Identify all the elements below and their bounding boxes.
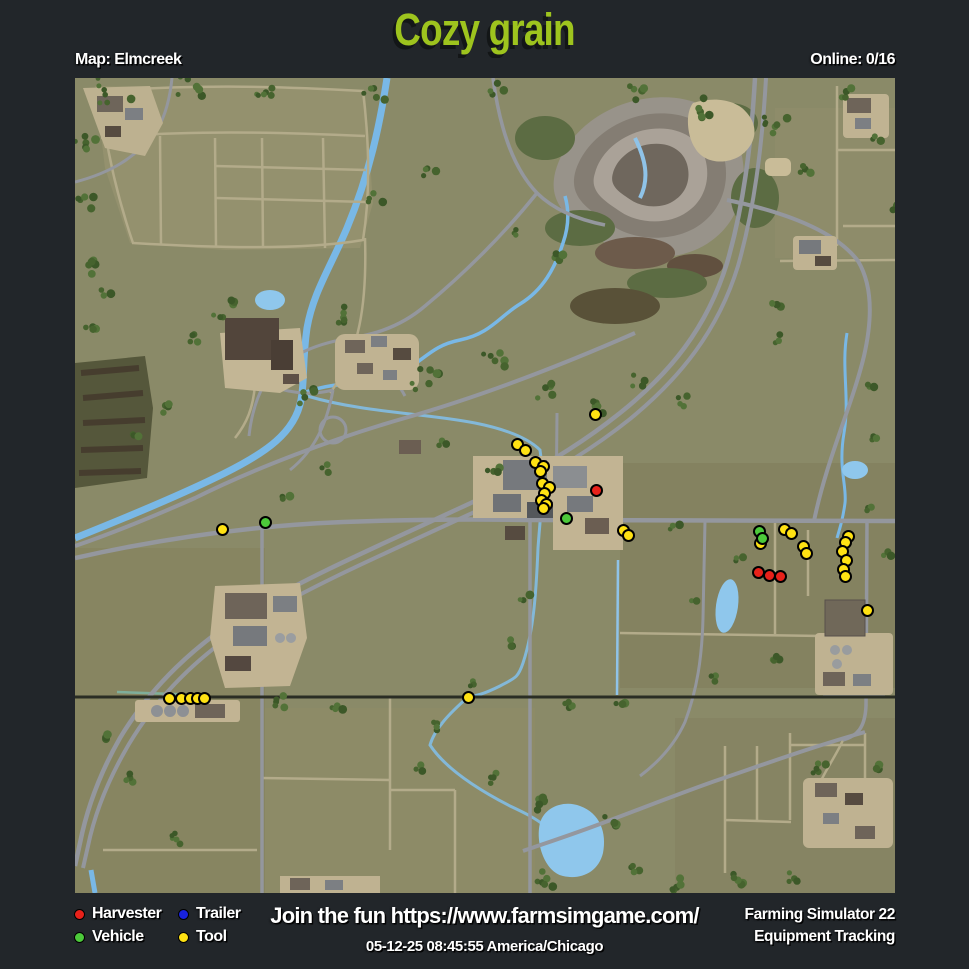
marker-tool[interactable] (216, 523, 229, 536)
equipment-tracking-page: Cozy grain Map: Elmcreek Online: 0/16 (0, 0, 969, 969)
marker-tool[interactable] (861, 604, 874, 617)
equipment-marker-layer (75, 78, 895, 893)
marker-vehicle[interactable] (756, 532, 769, 545)
marker-harvester[interactable] (590, 484, 603, 497)
map-name-label: Map: Elmcreek (75, 51, 181, 69)
app-title-line1: Farming Simulator 22 (745, 904, 895, 926)
timestamp: 05-12-25 08:45:55 America/Chicago (200, 938, 769, 955)
legend-item-harvester: Harvester (74, 906, 178, 922)
legend-item-vehicle: Vehicle (74, 929, 178, 945)
marker-tool[interactable] (462, 691, 475, 704)
marker-vehicle[interactable] (259, 516, 272, 529)
marker-tool[interactable] (534, 465, 547, 478)
tool-legend-dot (178, 932, 189, 943)
marker-tool[interactable] (537, 502, 550, 515)
map-view (75, 78, 895, 893)
app-title-line2: Equipment Tracking (745, 926, 895, 948)
marker-tool[interactable] (519, 444, 532, 457)
page-title: Cozy grain (87, 4, 882, 56)
online-count-label: Online: 0/16 (810, 51, 895, 69)
marker-harvester[interactable] (774, 570, 787, 583)
promo-link[interactable]: Join the fun https://www.farmsimgame.com… (200, 903, 769, 929)
marker-tool[interactable] (163, 692, 176, 705)
marker-tool[interactable] (589, 408, 602, 421)
marker-tool[interactable] (839, 570, 852, 583)
marker-vehicle[interactable] (560, 512, 573, 525)
trailer-legend-dot (178, 909, 189, 920)
vehicle-legend-dot (74, 932, 85, 943)
legend-label-vehicle: Vehicle (92, 929, 144, 945)
legend-label-harvester: Harvester (92, 906, 161, 922)
marker-tool[interactable] (622, 529, 635, 542)
app-title-block: Farming Simulator 22 Equipment Tracking (745, 904, 895, 948)
marker-tool[interactable] (800, 547, 813, 560)
marker-tool[interactable] (198, 692, 211, 705)
harvester-legend-dot (74, 909, 85, 920)
marker-tool[interactable] (785, 527, 798, 540)
